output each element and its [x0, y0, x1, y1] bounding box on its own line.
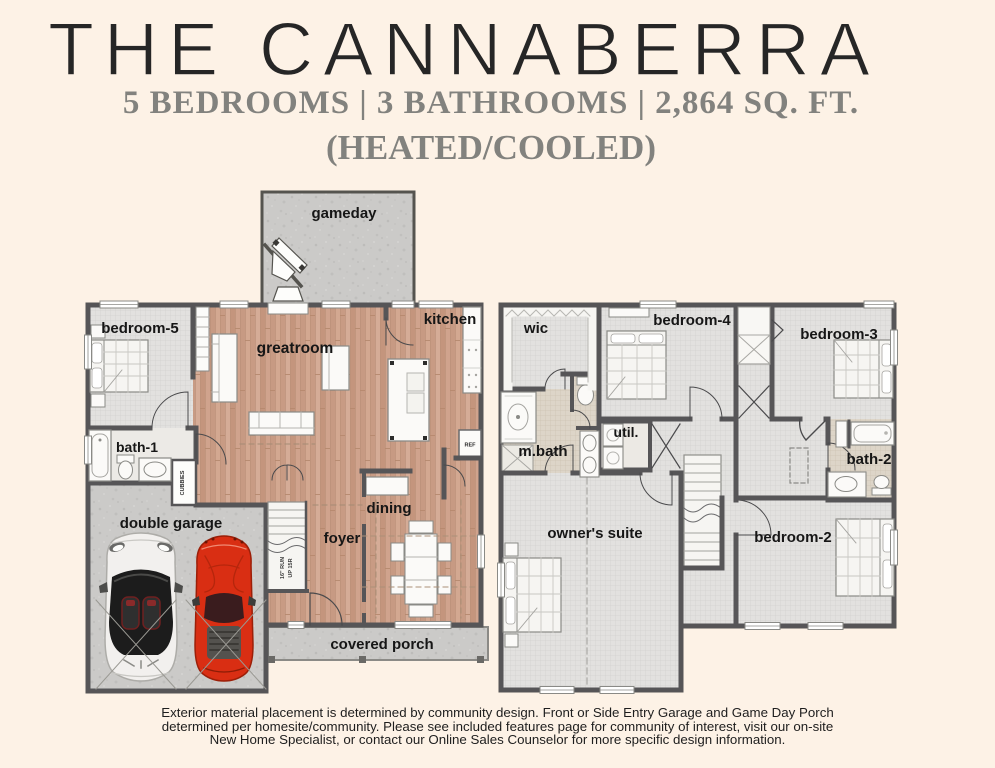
- svg-text:bath-2: bath-2: [847, 451, 892, 468]
- svg-text:greatroom: greatroom: [257, 340, 334, 357]
- svg-text:bedroom-3: bedroom-3: [800, 326, 878, 343]
- svg-text:covered porch: covered porch: [330, 636, 433, 653]
- svg-text:dining: dining: [367, 500, 412, 517]
- svg-text:REF: REF: [465, 443, 477, 449]
- svg-text:bedroom-2: bedroom-2: [754, 529, 832, 546]
- svg-text:bedroom-5: bedroom-5: [101, 320, 179, 337]
- svg-text:owner's suite: owner's suite: [547, 525, 642, 542]
- svg-text:double garage: double garage: [120, 515, 223, 532]
- svg-text:foyer: foyer: [324, 530, 361, 547]
- svg-text:bedroom-4: bedroom-4: [653, 312, 731, 329]
- svg-text:UP 15R: UP 15R: [288, 558, 294, 577]
- svg-text:bath-1: bath-1: [116, 439, 158, 455]
- svg-text:util.: util.: [614, 424, 639, 440]
- svg-text:gameday: gameday: [311, 205, 377, 222]
- svg-text:16" RUN: 16" RUN: [280, 557, 286, 579]
- svg-text:wic: wic: [523, 320, 548, 337]
- svg-text:CUBBIES: CUBBIES: [180, 470, 186, 495]
- svg-text:kitchen: kitchen: [424, 311, 477, 328]
- svg-text:m.bath: m.bath: [518, 443, 567, 460]
